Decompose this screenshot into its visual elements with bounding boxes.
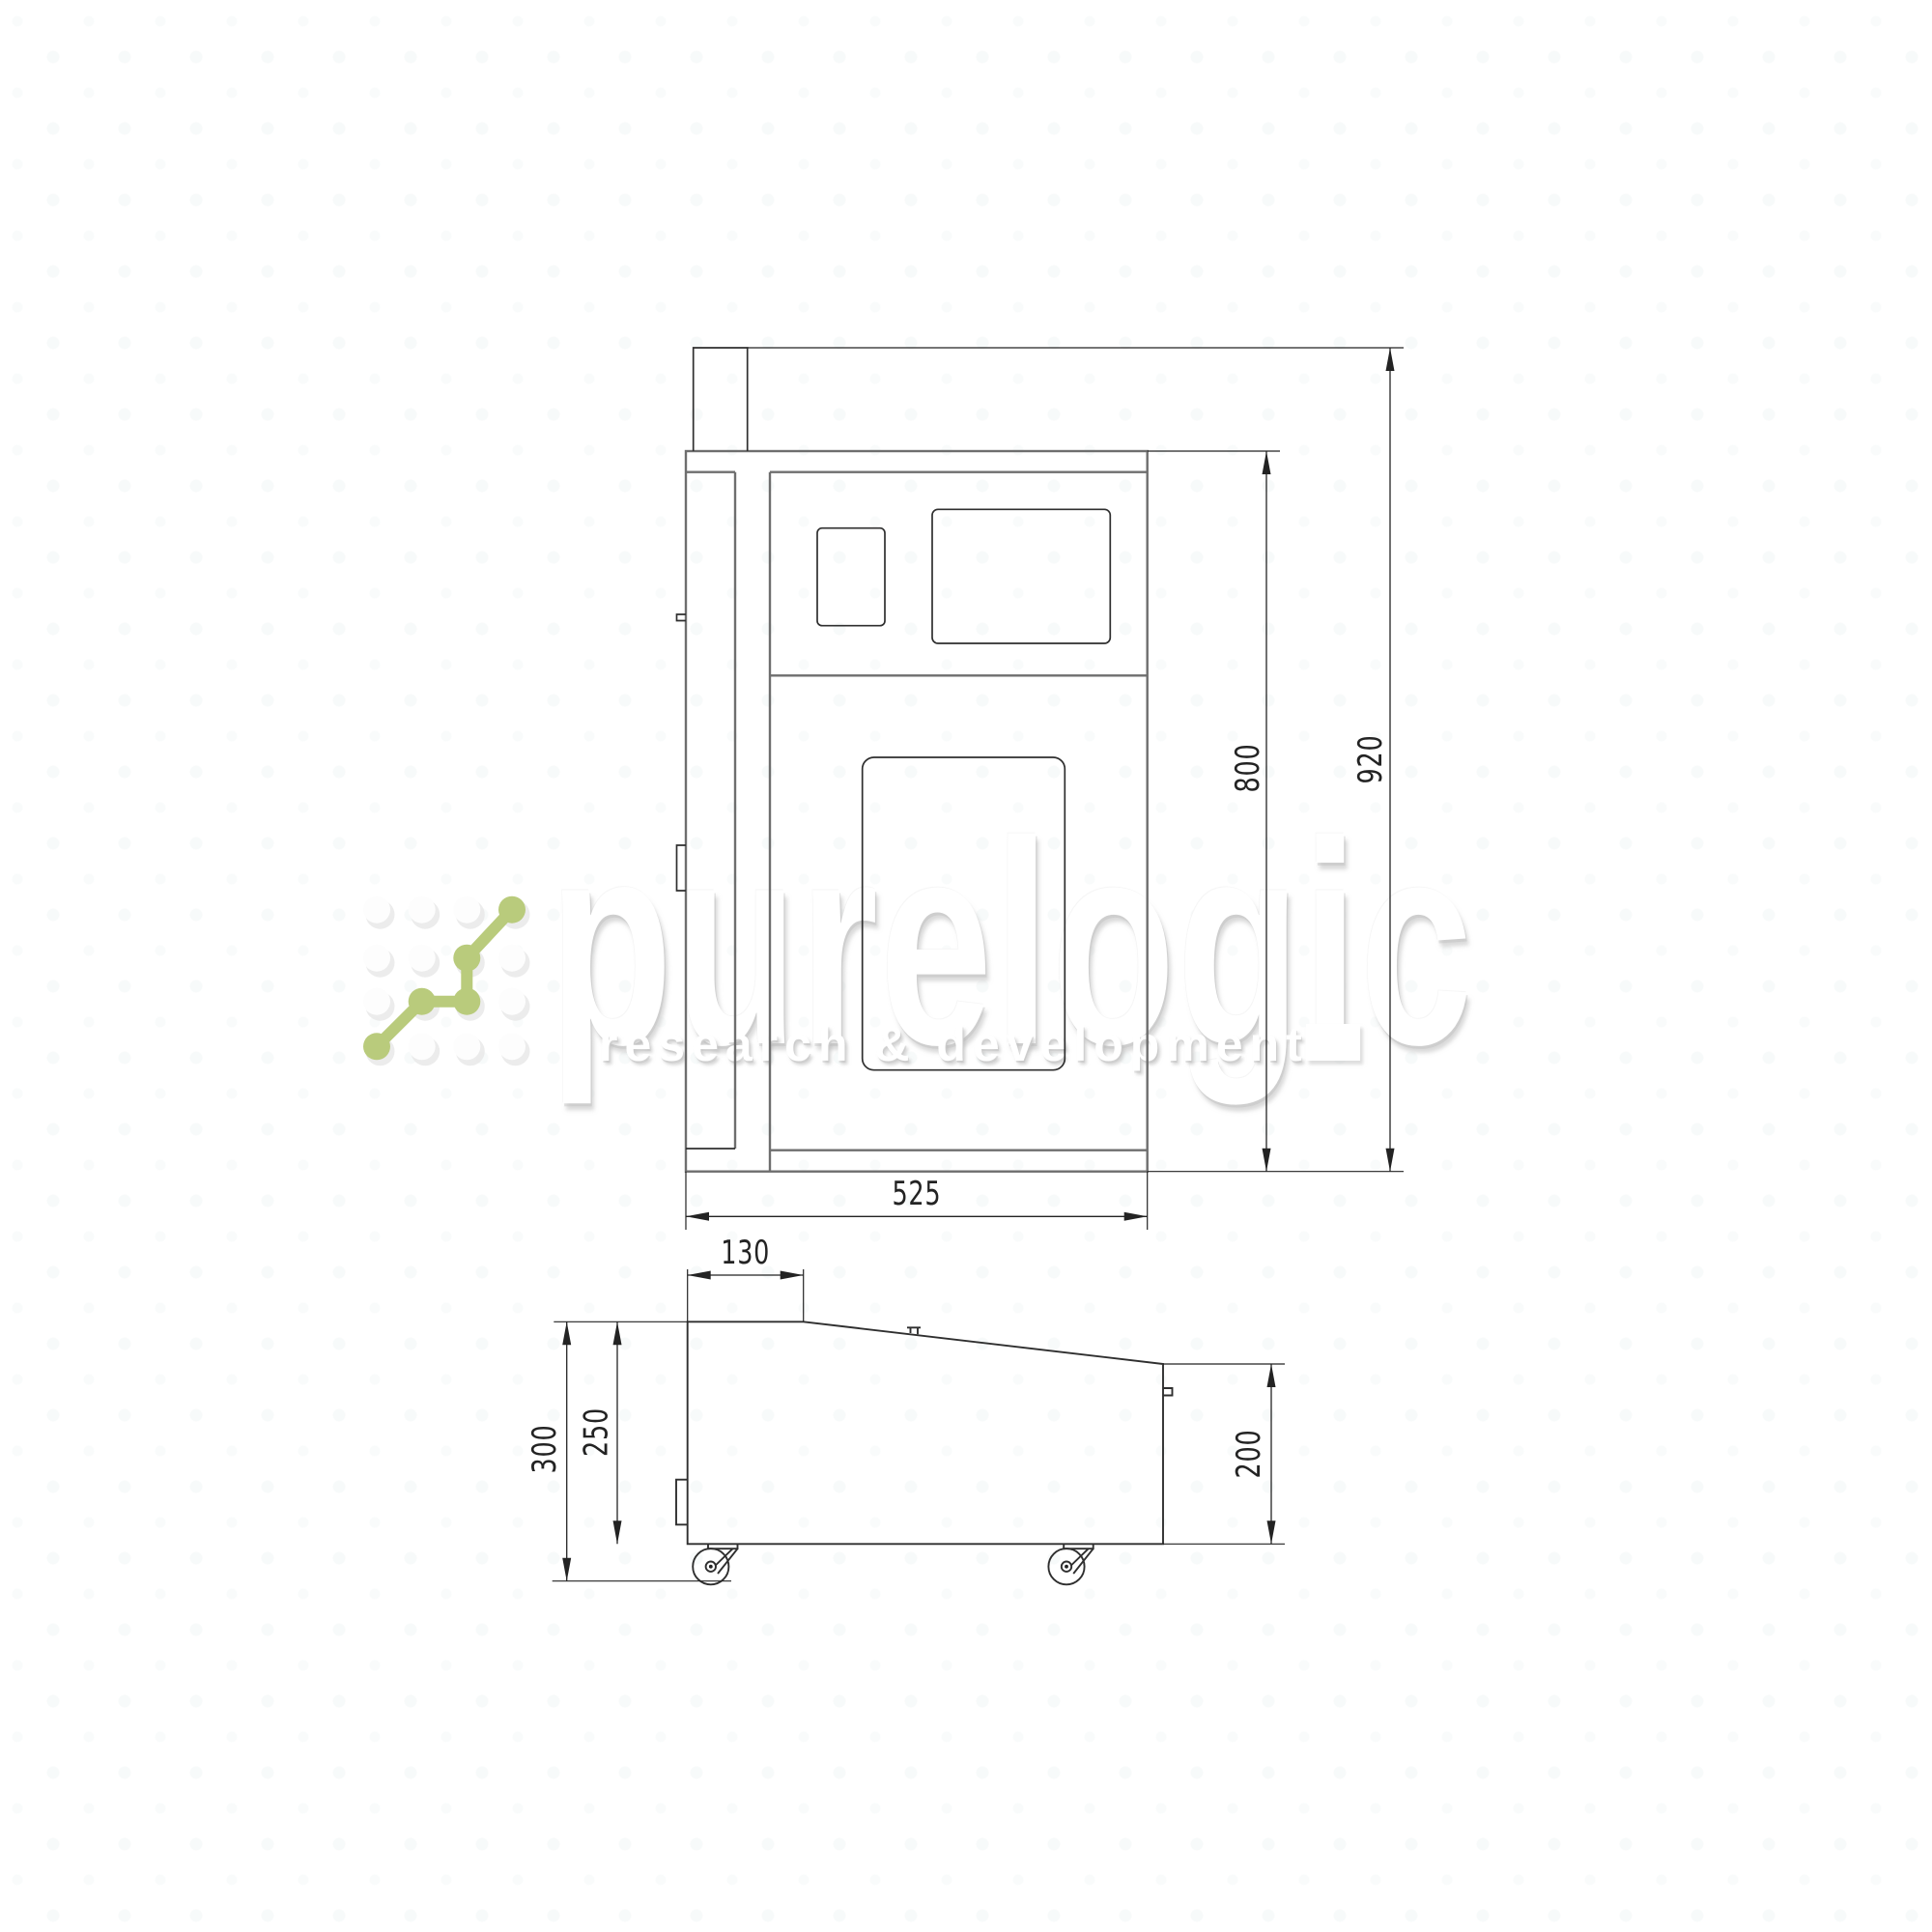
arrow-icon <box>613 1321 622 1345</box>
side-outline <box>688 1321 1163 1544</box>
door-window <box>863 757 1065 1070</box>
dim-label-300: 300 <box>526 1425 564 1474</box>
small-window <box>817 528 885 626</box>
arrow-icon <box>688 1271 711 1280</box>
exhaust-duct <box>694 348 748 451</box>
wheel-axle-dot <box>1065 1565 1068 1569</box>
front-view-details <box>677 348 1111 1149</box>
large-window <box>932 509 1110 643</box>
wheel-axle-dot <box>709 1565 713 1569</box>
door-pillar-lines <box>735 472 770 1172</box>
arrow-icon <box>562 1558 571 1581</box>
logo-mark-icon <box>363 896 530 1066</box>
door-hinge-tab <box>677 614 687 621</box>
arrow-icon <box>1263 1149 1271 1172</box>
caster-wheel-front-icon <box>693 1544 737 1584</box>
arrow-icon <box>1386 348 1395 371</box>
arrow-icon <box>1386 1149 1395 1172</box>
side-door-handle <box>676 1480 688 1525</box>
arrow-icon <box>613 1520 622 1544</box>
dim-label-525: 525 <box>892 1175 941 1213</box>
dim-label-920: 920 <box>1351 735 1390 784</box>
dim-label-250: 250 <box>578 1407 616 1457</box>
drawing-canvas: purelogic research & development <box>0 0 1932 1932</box>
side-view-structure <box>676 1321 1173 1584</box>
door-handle <box>677 845 687 891</box>
rear-tab <box>1163 1388 1173 1396</box>
dimension-labels: 800 920 525 130 300 250 200 <box>526 735 1390 1479</box>
arrow-icon <box>686 1212 709 1221</box>
arrow-icon <box>1124 1212 1148 1221</box>
arrow-icon <box>781 1271 804 1280</box>
front-view-structure <box>686 451 1148 1172</box>
dim-label-130: 130 <box>721 1234 770 1272</box>
arrow-icon <box>1267 1364 1276 1387</box>
arrow-icon <box>1263 451 1271 474</box>
arrow-icon <box>1267 1520 1276 1544</box>
dim-label-200: 200 <box>1230 1430 1268 1479</box>
machine-outline <box>686 451 1148 1172</box>
dim-label-800: 800 <box>1229 744 1267 793</box>
dimension-lines <box>567 348 1390 1581</box>
technical-drawing: 800 920 525 130 300 250 200 <box>0 0 1932 1932</box>
caster-wheel-rear-icon <box>1048 1544 1093 1584</box>
arrow-icon <box>562 1321 571 1345</box>
extension-lines <box>553 348 1404 1581</box>
logo-green-path <box>377 910 512 1047</box>
